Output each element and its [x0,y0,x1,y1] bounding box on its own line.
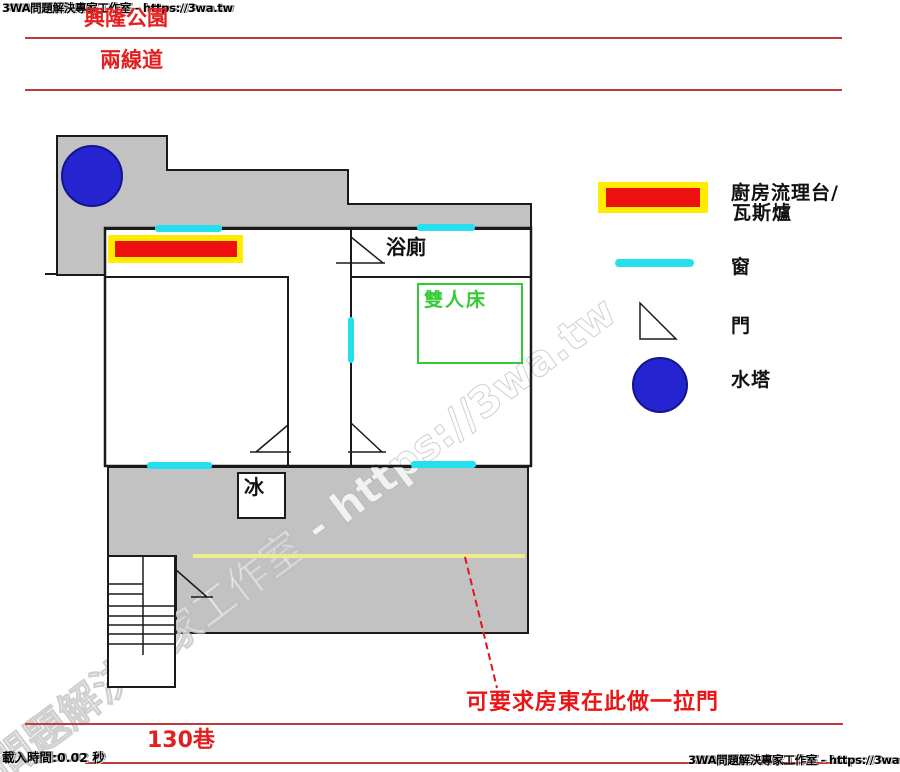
floor-plan-page: 3WA問題解決專家工作室 - https://3wa.tw [0,0,900,772]
road-line-bottom-1 [25,723,843,725]
legend-counter-symbol [606,188,700,207]
lane-label: 130巷 [147,729,215,753]
load-time-label: 載入時間:0.02 秒 [2,751,105,765]
sliding-door-position-line [193,554,525,558]
stairs-box [108,556,175,687]
road-line-top-2 [25,89,842,91]
road-label: 兩線道 [100,49,163,72]
legend-water-tank-symbol [633,358,687,412]
legend-water-tank-label: 水塔 [731,370,771,391]
kitchen-counter [115,241,237,257]
road-line-top-1 [25,37,842,39]
stairs-door [175,569,213,597]
bathroom-door [336,237,385,263]
living-room-bottom-window [147,462,212,469]
bathroom-label: 浴廁 [386,236,426,258]
bedroom-door [348,423,386,452]
annotation-text: 可要求房東在此做一拉門 [466,691,719,715]
bedroom-side-window [348,317,354,363]
annotation-leader-line [465,557,497,688]
fridge-label: 冰 [244,476,264,498]
legend-counter-label-line1: 廚房流理台/ [731,183,839,204]
site-watermark-bottom: 3WA問題解決專家工作室 - https://3wa.tw [688,754,900,767]
park-label: 興隆公園 [84,7,168,30]
legend-door-symbol [640,303,676,339]
house-outer-walls [105,228,531,466]
legend-door-label: 門 [731,316,751,337]
kitchen-top-window [155,225,222,232]
bathroom-top-window [417,224,475,231]
bedroom-bottom-window [411,461,476,468]
legend-window-label: 窗 [731,257,751,278]
water-tank [62,146,122,206]
legend-window-symbol [615,259,694,267]
legend-counter-label-line2: 瓦斯爐 [732,203,792,224]
double-bed-label: 雙人床 [424,290,487,311]
living-room-door [250,425,291,452]
